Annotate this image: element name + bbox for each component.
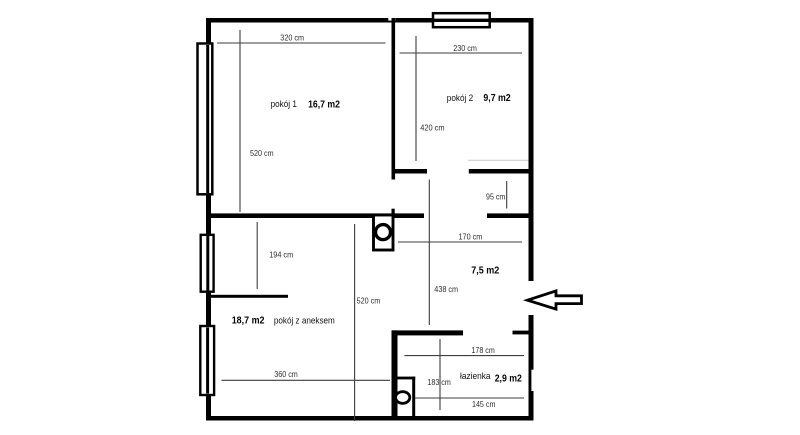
svg-text:145 cm: 145 cm (472, 399, 495, 409)
svg-text:pokój 2: pokój 2 (447, 93, 473, 104)
svg-text:320 cm: 320 cm (280, 33, 304, 43)
svg-text:9,7 m2: 9,7 m2 (483, 93, 511, 104)
svg-text:183 cm: 183 cm (427, 377, 450, 387)
svg-text:95 cm: 95 cm (486, 191, 505, 201)
svg-text:łazienka: łazienka (460, 371, 491, 382)
svg-text:438 cm: 438 cm (434, 284, 458, 294)
svg-text:520 cm: 520 cm (357, 296, 381, 306)
svg-text:360 cm: 360 cm (274, 369, 298, 379)
svg-text:pokój 1: pokój 1 (271, 99, 297, 110)
svg-text:230 cm: 230 cm (453, 43, 477, 53)
svg-text:194 cm: 194 cm (269, 250, 293, 260)
svg-text:420 cm: 420 cm (420, 123, 444, 133)
svg-text:170 cm: 170 cm (459, 232, 483, 242)
svg-text:178 cm: 178 cm (471, 345, 494, 355)
svg-text:7,5 m2: 7,5 m2 (471, 265, 499, 276)
svg-text:16,7 m2: 16,7 m2 (308, 100, 340, 111)
svg-text:18,7 m2: 18,7 m2 (232, 315, 265, 326)
svg-text:pokój z aneksem: pokój z aneksem (274, 316, 335, 327)
svg-text:2,9 m2: 2,9 m2 (495, 374, 522, 385)
svg-text:520 cm: 520 cm (250, 148, 274, 158)
